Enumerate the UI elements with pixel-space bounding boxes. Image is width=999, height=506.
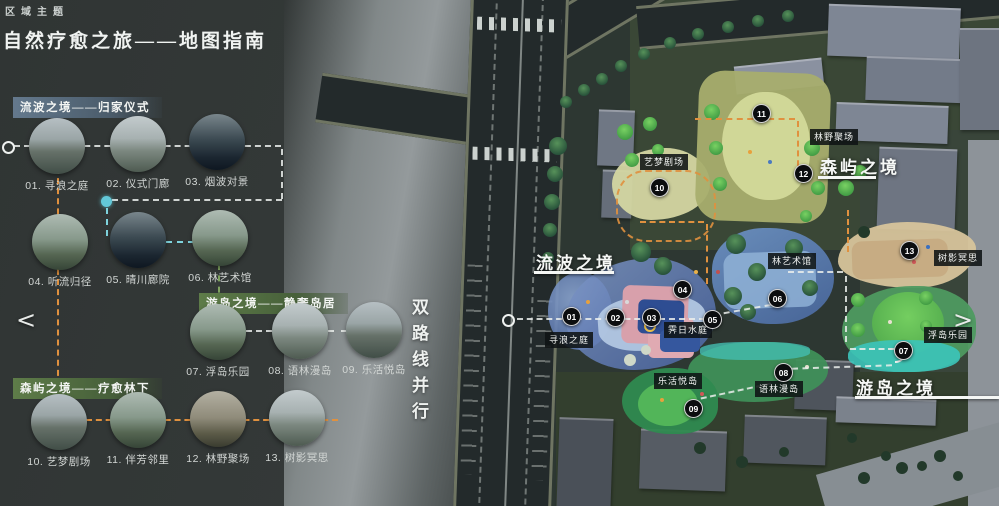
person-figure [768,160,772,164]
map-route-line [788,271,843,273]
poi-photo [269,390,325,446]
parking-ticks [460,264,482,474]
route-node-dot [101,196,112,207]
slide-map-guide: 寻浪之庭霁日水庭林艺术馆艺梦剧场林野聚场树影冥思浮岛乐园语林漫岛乐活悦岛 010… [0,0,999,506]
map-zone-title-senyu: 森屿之境 [820,153,900,178]
poi-photo [29,118,85,174]
tree-icon [692,28,704,40]
tree-icon [953,471,963,481]
tree-icon [896,462,908,474]
map-label: 乐活悦岛 [654,373,702,389]
tree-icon [713,177,727,191]
building [827,4,961,61]
map-marker-02[interactable]: 02 [606,308,625,327]
route-line [246,330,272,332]
route-line-cyan [166,241,194,243]
map-route-line [850,348,894,350]
parking-ticks [531,300,552,480]
map-label: 艺梦剧场 [640,154,688,170]
tree-icon [917,461,927,471]
tree-icon [858,472,870,484]
map-marker-03[interactable]: 03 [642,308,661,327]
map-marker-07[interactable]: 07 [894,341,913,360]
tree-icon [578,84,590,96]
prev-arrow-icon[interactable]: < [16,306,36,334]
person-figure [716,270,720,274]
tree-icon [851,293,865,307]
map-label: 寻浪之庭 [545,332,593,348]
tree-icon [596,73,608,85]
tree-icon [560,96,572,108]
tree-icon [802,280,818,296]
map-route2-line [695,118,795,120]
zone-title-underline [818,176,876,179]
tree-icon [543,223,557,237]
slide-eyebrow: 区域主题 [5,3,69,18]
tree-icon [624,354,636,366]
map-marker-04[interactable]: 04 [673,280,692,299]
tree-icon [858,226,870,238]
poi-photo [346,302,402,358]
map-route-line [659,318,705,320]
map-marker-12[interactable]: 12 [794,164,813,183]
person-figure [748,150,752,154]
map-marker-10[interactable]: 10 [650,178,669,197]
building [556,417,613,506]
vertical-note: 双路线并行 [406,298,431,428]
person-figure [926,245,930,249]
person-figure [694,270,698,274]
tree-icon [934,450,946,462]
building [639,429,727,492]
person-figure [660,398,664,402]
site-zone-blob [700,342,810,360]
poi-photo [31,394,87,450]
tree-icon [881,451,891,461]
tree-icon [736,456,748,468]
tree-icon [631,242,651,262]
tree-icon [709,141,723,155]
map-route2-line [706,224,708,284]
tree-icon [748,263,766,281]
poi-photo [110,392,166,448]
map-route2-line [847,210,849,252]
map-route-line [517,318,650,320]
person-figure [912,260,916,264]
map-marker-11[interactable]: 11 [752,104,771,123]
poi-photo [110,116,166,172]
poi-photo [32,214,88,270]
tree-icon [544,194,560,210]
map-route2-line [640,221,704,223]
map-marker-01[interactable]: 01 [562,307,581,326]
building [960,28,999,130]
map-marker-05[interactable]: 05 [703,310,722,329]
map-label: 林野聚场 [810,129,858,145]
map-marker-13[interactable]: 13 [900,241,919,260]
map-marker-09[interactable]: 09 [684,399,703,418]
route-line [112,199,282,201]
zone-title-underline [855,396,999,399]
tree-icon [617,124,633,140]
section-header-liubo: 流波之境——归家仪式 [13,97,162,118]
tree-icon [838,180,854,196]
tree-icon [549,137,567,155]
poi-photo [189,114,245,170]
route-line [281,149,283,199]
tree-icon [694,442,706,454]
person-figure [888,320,892,324]
tree-icon [547,166,563,182]
zone-title-underline [534,271,614,274]
person-figure [700,392,704,396]
map-route-start-ring [502,314,515,327]
route-start-ring [2,141,15,154]
poi-photo [272,303,328,359]
building [743,415,827,466]
poi-label: 03. 烟波对景 [162,174,272,189]
tree-icon [847,433,857,443]
poi-label: 06. 林艺术馆 [165,270,275,285]
person-figure [625,300,629,304]
tree-icon [779,447,789,457]
tree-icon [782,10,794,22]
tree-icon [726,234,746,254]
tree-icon [724,287,742,305]
tree-icon [800,210,812,222]
tree-icon [641,345,651,355]
map-marker-06[interactable]: 06 [768,289,787,308]
map-label: 林艺术馆 [768,253,816,269]
next-arrow-icon[interactable]: > [953,306,973,334]
poi-label: 13. 树影冥思 [242,450,352,465]
tree-icon [615,60,627,72]
tree-icon [722,21,734,33]
poi-photo [192,210,248,266]
page-title: 自然疗愈之旅——地图指南 [3,26,267,53]
map-route-line [845,276,847,342]
poi-photo [190,304,246,360]
lane-line [478,0,498,506]
tree-icon [638,48,650,60]
person-figure [586,300,590,304]
tree-icon [752,15,764,27]
tree-icon [625,153,639,167]
map-marker-08[interactable]: 08 [774,363,793,382]
tree-icon [811,181,825,195]
tree-icon [919,291,933,305]
route-line [328,330,347,332]
route-line-cyan [106,208,108,236]
tree-icon [664,37,676,49]
tree-icon [654,257,672,275]
crosswalk [477,17,561,33]
map-label: 树影冥思 [934,250,982,266]
building [836,396,937,425]
poi-photo [190,391,246,447]
crosswalk [472,147,556,163]
map-label: 语林漫岛 [755,381,803,397]
tree-icon [851,323,865,337]
lane-line [504,0,524,506]
tree-icon [643,117,657,131]
poi-photo [110,212,166,268]
